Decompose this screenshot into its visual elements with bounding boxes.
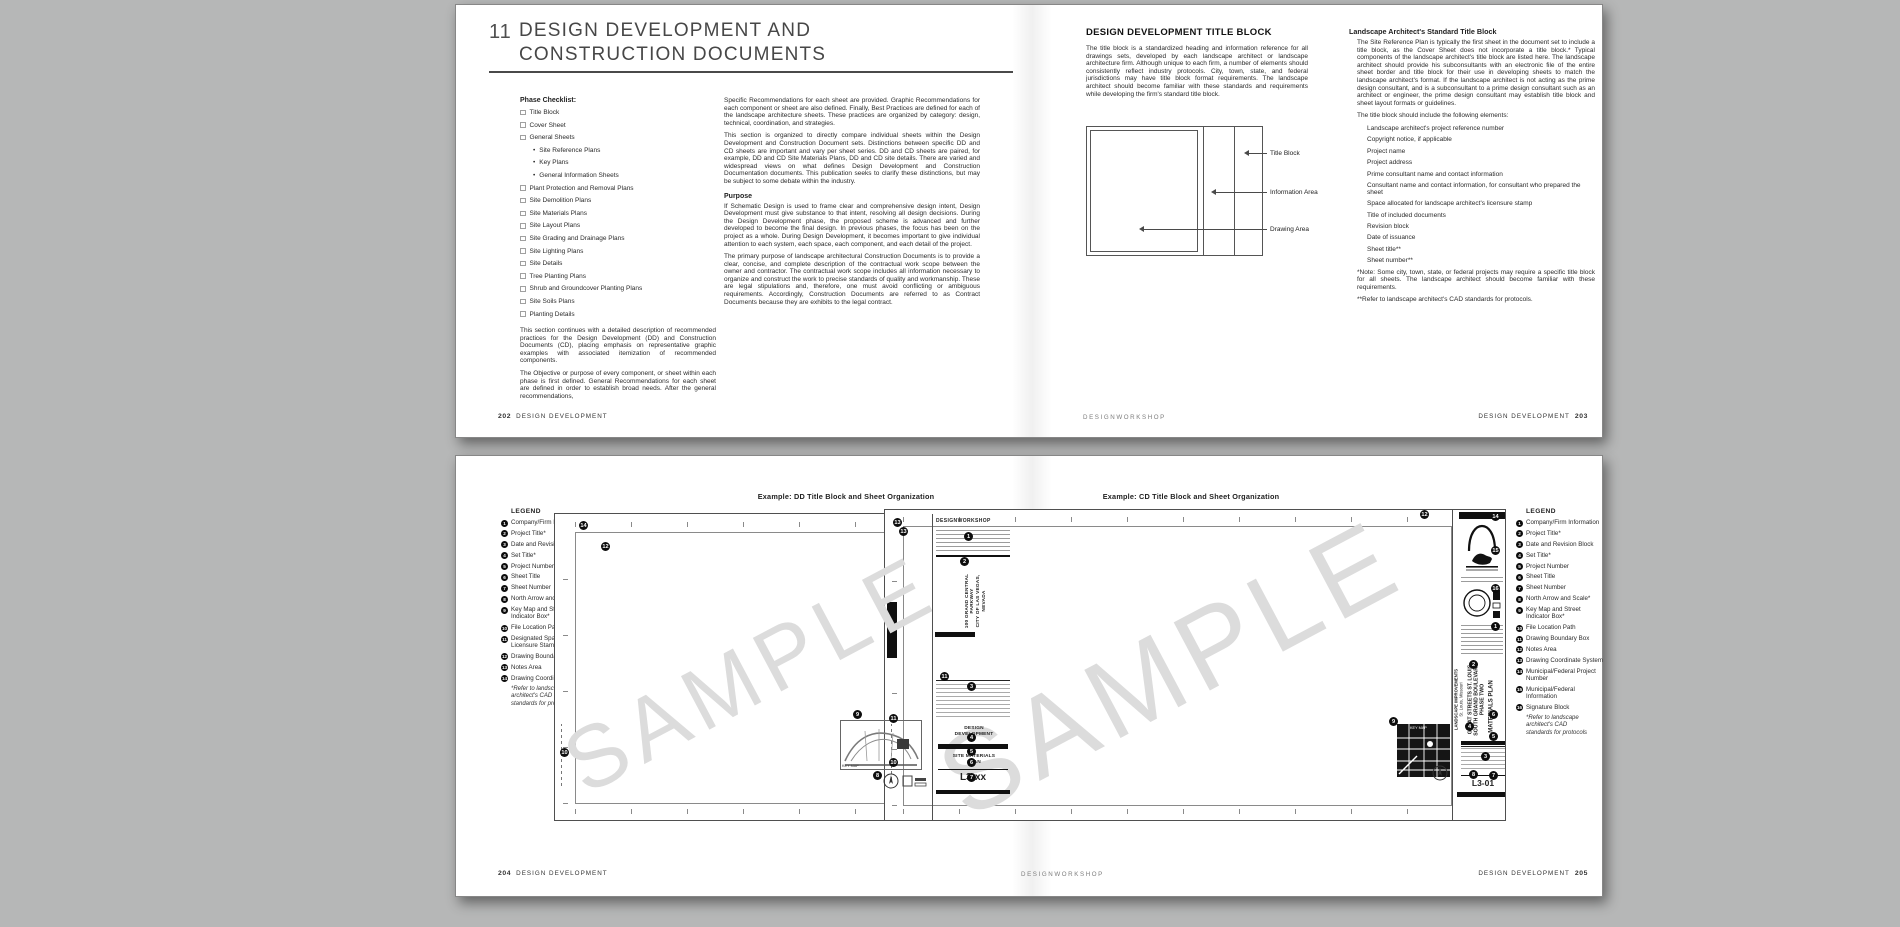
footnote: *Note: Some city, town, state, or federa…	[1349, 269, 1595, 292]
title-block-element: Consultant name and contact information,…	[1349, 182, 1595, 196]
checklist-item-label: Cover Sheet	[530, 122, 566, 129]
legend-number-badge: 3	[1516, 541, 1523, 548]
checklist-item-label: Plant Protection and Removal Plans	[530, 185, 634, 192]
chapter-title-line2: CONSTRUCTION DOCUMENTS	[519, 43, 826, 67]
legend-item: 15Municipal/Federal Information	[1516, 686, 1604, 701]
phase-checklist: Title BlockCover SheetGeneral Sheets•Sit…	[520, 109, 710, 323]
title-line3: PHASE TWO	[1479, 684, 1485, 715]
callout-11: 11	[889, 714, 898, 723]
callout-1: 1	[1491, 622, 1500, 631]
callout-8: 8	[1469, 770, 1478, 779]
page-203-footer: DESIGN DEVELOPMENT203	[1473, 413, 1588, 420]
footnote: **Refer to landscape architect's CAD sta…	[1349, 296, 1595, 304]
title-block-element: Landscape architect's project reference …	[1349, 125, 1595, 132]
phase-checklist-heading: Phase Checklist:	[520, 97, 576, 104]
checklist-item: Site Grading and Drainage Plans	[520, 235, 710, 242]
checklist-item: Tree Planting Plans	[520, 273, 710, 280]
checklist-item-label: General Sheets	[530, 134, 575, 141]
legend-number-badge: 5	[501, 563, 508, 570]
legend-number-badge: 14	[1516, 668, 1523, 675]
callout-2: 2	[1469, 660, 1478, 669]
callout-1: 1	[964, 532, 973, 541]
strip-bottom-bar	[936, 790, 1010, 794]
legend-item: 10File Location Path	[1516, 624, 1604, 632]
title-block-arrow-line	[1249, 153, 1267, 154]
strip-bottom-bar	[1457, 792, 1505, 797]
checklist-item-label: Shrub and Groundcover Planting Plans	[530, 285, 643, 292]
title-block-element: Prime consultant name and contact inform…	[1349, 171, 1595, 178]
page-205-footer: DESIGN DEVELOPMENT205	[1473, 870, 1588, 877]
legend-number-badge: 16	[1516, 704, 1523, 711]
checklist-item-label: Site Reference Plans	[539, 147, 600, 154]
legend-item-label: Project Title*	[511, 530, 546, 538]
drawing-area-box	[1090, 130, 1198, 252]
legend-number-badge: 6	[501, 574, 508, 581]
page-202-footer: 202DESIGN DEVELOPMENT	[498, 413, 613, 420]
logo-caption-text	[1461, 574, 1503, 582]
key-map-label: KEY MAP	[1410, 726, 1427, 730]
page-number: 205	[1575, 870, 1588, 877]
callout-13: 13	[893, 518, 902, 527]
paragraph: This section continues with a detailed d…	[520, 327, 716, 365]
legend-item-label: Date and Revision Block	[1526, 541, 1593, 549]
checklist-item: Site Soils Plans	[520, 298, 710, 305]
page202-col1: This section continues with a detailed d…	[520, 327, 716, 405]
callout-8: 8	[873, 771, 882, 780]
title-block-element: Revision block	[1349, 223, 1595, 230]
footer-section-label: DESIGN DEVELOPMENT	[1478, 870, 1569, 877]
legend-number-badge: 7	[501, 585, 508, 592]
paragraph: The Site Reference Plan is typically the…	[1349, 39, 1595, 107]
legend-item: 6Sheet Title	[1516, 573, 1604, 581]
legend-number-badge: 10	[1516, 625, 1523, 632]
legend-item-label: Drawing Boundary Box	[1526, 635, 1589, 643]
checkbox-icon	[520, 286, 526, 292]
callout-6: 6	[967, 758, 976, 767]
legend-item: 9Key Map and Street Indicator Box*	[1516, 606, 1604, 621]
drawing-area-arrow-line	[1144, 229, 1267, 230]
callout-12: 12	[1420, 510, 1429, 519]
legend-number-badge: 6	[1516, 574, 1523, 581]
checklist-item: Plant Protection and Removal Plans	[520, 185, 710, 192]
standard-title-block-heading: Landscape Architect's Standard Title Blo…	[1349, 27, 1595, 36]
key-map-label: KEY MAP	[842, 764, 859, 768]
legend-number-badge: 11	[1516, 636, 1523, 643]
legend-number-badge: 1	[501, 520, 508, 527]
checklist-item: Site Materials Plans	[520, 210, 710, 217]
firm-info-text	[936, 527, 1010, 551]
checklist-item: •Site Reference Plans	[520, 147, 710, 154]
callout-7: 7	[1489, 771, 1498, 780]
chapter-title-line1: DESIGN DEVELOPMENT AND	[519, 19, 826, 43]
checkbox-icon	[520, 185, 526, 191]
checklist-item: General Sheets	[520, 134, 710, 141]
footer-section-label: DESIGN DEVELOPMENT	[516, 870, 607, 877]
sheet-title: MATERIALS PLAN	[1488, 680, 1494, 733]
checklist-item-label: Site Lighting Plans	[530, 248, 584, 255]
title-block-divider	[1234, 126, 1235, 256]
legend-item-label: File Location Path	[1526, 624, 1576, 632]
legend-item-label: Notes Area	[1526, 646, 1557, 654]
chapter-number: 11	[489, 21, 512, 44]
legend-number-badge: 14	[501, 675, 508, 682]
checkbox-icon	[520, 248, 526, 254]
callout-12: 12	[601, 542, 610, 551]
callout-6: 6	[1489, 710, 1498, 719]
callout-3: 3	[1481, 752, 1490, 761]
dd-sheet-diagram: SAMPLE DESIGNWORKSHOP 100 GRAND CENTRAL …	[554, 513, 1013, 821]
publisher-brand-mark: DESIGNWORKSHOP	[1083, 414, 1166, 421]
legend-item-label: Sheet Title	[1526, 573, 1555, 581]
key-map-drawing	[841, 721, 921, 769]
sheet-number: L3-01	[1461, 775, 1505, 788]
book-viewer-background: 11 DESIGN DEVELOPMENT AND CONSTRUCTION D…	[0, 0, 1900, 927]
project-subtitle-vertical: LANDSCAPE IMPROVEMENTS St. Louis, Missou…	[1452, 658, 1465, 742]
checklist-item-label: Site Grading and Drainage Plans	[530, 235, 625, 242]
cd-legend: LEGEND 1Company/Firm Information2Project…	[1516, 508, 1604, 737]
strip-divider	[936, 555, 1010, 557]
callout-11: 11	[940, 672, 949, 681]
legend-item-label: Municipal/Federal Project Number	[1526, 668, 1604, 683]
spine-shadow	[1012, 5, 1052, 437]
project-title-line1: 100 GRAND CENTRAL PARKWAY	[965, 569, 976, 633]
page203-right-column: Landscape Architect's Standard Title Blo…	[1349, 27, 1595, 309]
legend-item: 3Date and Revision Block	[1516, 541, 1604, 549]
callout-10: 10	[560, 748, 569, 757]
north-arrow-icon	[1431, 764, 1449, 782]
title-block-element: Title of included documents	[1349, 212, 1595, 219]
legend-number-badge: 13	[501, 664, 508, 671]
information-area-arrow-line	[1216, 192, 1267, 193]
legend-item-label: Municipal/Federal Information	[1526, 686, 1604, 701]
checklist-item-label: Key Plans	[539, 159, 568, 166]
legend-number-badge: 9	[1516, 607, 1523, 614]
page203-intro: The title block is a standardized headin…	[1086, 45, 1308, 103]
legend-number-badge: 4	[1516, 552, 1523, 559]
checkbox-icon	[520, 211, 526, 217]
project-title-line2: CITY OF LAS VEGAS, NEVADA	[976, 569, 987, 633]
callout-14: 14	[1491, 512, 1500, 521]
legend-number-badge: 3	[501, 541, 508, 548]
drawing-area-label: Drawing Area	[1270, 226, 1309, 233]
callout-13: 13	[899, 527, 908, 536]
checkbox-icon	[520, 299, 526, 305]
legend-item-label: Set Title*	[511, 552, 536, 560]
legend-number-badge: 8	[1516, 596, 1523, 603]
paragraph: The Objective or purpose of every compon…	[520, 370, 716, 400]
legend-item-label: North Arrow and Scale*	[1526, 595, 1590, 603]
legend-number-badge: 2	[1516, 530, 1523, 537]
legend-item: 1Company/Firm Information	[1516, 519, 1604, 527]
legend-number-badge: 4	[501, 552, 508, 559]
checklist-item: Planting Details	[520, 311, 710, 318]
page-204-footer: 204DESIGN DEVELOPMENT	[498, 870, 613, 877]
callout-2: 2	[960, 557, 969, 566]
checklist-item: Title Block	[520, 109, 710, 116]
callout-15: 15	[1491, 546, 1500, 555]
footer-section-label: DESIGN DEVELOPMENT	[1478, 413, 1569, 420]
page-number: 203	[1575, 413, 1588, 420]
title-block-element: Sheet title**	[1349, 246, 1595, 253]
checkbox-icon	[520, 236, 526, 242]
legend-item-label: Company/Firm Information	[1526, 519, 1599, 527]
legend-item-label: Sheet Number	[1526, 584, 1566, 592]
checklist-item: •Key Plans	[520, 159, 710, 166]
legend-item: 2Project Title*	[1516, 530, 1604, 538]
title-block-element: Space allocated for landscape architect'…	[1349, 200, 1595, 207]
legend-footnote: *Refer to landscape architect's CAD stan…	[1526, 715, 1588, 737]
callout-9: 9	[1389, 717, 1398, 726]
legend-item-label: Signature Block	[1526, 704, 1569, 712]
checkbox-icon	[520, 135, 526, 141]
north-arrow-and-scale-icon	[882, 772, 928, 790]
legend-number-badge: 13	[1516, 657, 1523, 664]
callout-4: 4	[1465, 722, 1474, 731]
information-area-label: Information Area	[1270, 189, 1318, 196]
cd-example-title: Example: CD Title Block and Sheet Organi…	[961, 492, 1421, 501]
legend-number-badge: 1	[1516, 520, 1523, 527]
page-number: 204	[498, 870, 511, 877]
page-number: 202	[498, 413, 511, 420]
footer-section-label: DESIGN DEVELOPMENT	[516, 413, 607, 420]
checklist-item: Site Layout Plans	[520, 222, 710, 229]
dd-title-block-heading: DESIGN DEVELOPMENT TITLE BLOCK	[1086, 27, 1272, 38]
callout-4: 4	[967, 733, 976, 742]
checklist-item-label: Site Demolition Plans	[530, 197, 592, 204]
checklist-item: Site Demolition Plans	[520, 197, 710, 204]
checklist-item: Site Lighting Plans	[520, 248, 710, 255]
checklist-item-label: Tree Planting Plans	[530, 273, 587, 280]
checkbox-icon	[520, 110, 526, 116]
callout-9: 9	[853, 710, 862, 719]
paragraph: If Schematic Design is used to frame cle…	[724, 203, 980, 249]
legend-item-label: Drawing Coordinate System	[1526, 657, 1603, 665]
legend-number-badge: 12	[1516, 646, 1523, 653]
checklist-item: •General Information Sheets	[520, 172, 710, 179]
checklist-item-label: Title Block	[530, 109, 560, 116]
purpose-heading: Purpose	[724, 193, 980, 200]
paragraph: Specific Recommendations for each sheet …	[724, 97, 980, 127]
legend-item: 5Project Number	[1516, 563, 1604, 571]
bottom-page-spread: Example: DD Title Block and Sheet Organi…	[455, 455, 1603, 897]
bullet-marker: •	[533, 160, 535, 165]
paragraph: The title block is a standardized headin…	[1086, 45, 1308, 98]
coordinate-ticks-top	[575, 522, 932, 527]
title-block-elements-list: Landscape architect's project reference …	[1349, 125, 1595, 264]
legend-number-badge: 12	[501, 653, 508, 660]
checklist-item: Cover Sheet	[520, 122, 710, 129]
legend-item: 14Municipal/Federal Project Number	[1516, 668, 1604, 683]
callout-5: 5	[1489, 732, 1498, 741]
legend-number-badge: 2	[501, 530, 508, 537]
project-number-bar	[1461, 741, 1505, 745]
legend-heading: LEGEND	[1526, 508, 1604, 515]
checkbox-icon	[520, 311, 526, 317]
legend-items: 1Company/Firm Information2Project Title*…	[1516, 519, 1604, 711]
legend-item-label: Set Title*	[1526, 552, 1551, 560]
checkbox-icon	[520, 223, 526, 229]
legend-item: 12Notes Area	[1516, 646, 1604, 654]
legend-item-label: Project Number	[511, 563, 554, 571]
callout-5: 5	[967, 747, 976, 756]
checklist-item-label: Site Soils Plans	[530, 298, 575, 305]
legend-item-label: Notes Area	[511, 664, 542, 672]
legend-number-badge: 7	[1516, 585, 1523, 592]
checkbox-icon	[520, 198, 526, 204]
callout-16: 16	[1491, 584, 1500, 593]
checklist-item-label: Site Materials Plans	[530, 210, 587, 217]
callout-10: 10	[889, 758, 898, 767]
legend-number-badge: 10	[501, 625, 508, 632]
checkbox-icon	[520, 122, 526, 128]
title-block-diagram: Title Block Information Area Drawing Are…	[1086, 126, 1326, 258]
callout-7: 7	[967, 773, 976, 782]
legend-number-badge: 15	[1516, 686, 1523, 693]
publisher-brand-mark: DESIGNWORKSHOP	[1021, 871, 1104, 878]
top-page-spread: 11 DESIGN DEVELOPMENT AND CONSTRUCTION D…	[455, 4, 1603, 438]
legend-item: 4Set Title*	[1516, 552, 1604, 560]
checkbox-icon	[520, 261, 526, 267]
legend-item: 7Sheet Number	[1516, 584, 1604, 592]
callout-14: 14	[579, 521, 588, 530]
subtitle-line2: St. Louis, Missouri	[1458, 682, 1463, 716]
chapter-title: DESIGN DEVELOPMENT AND CONSTRUCTION DOCU…	[519, 19, 826, 67]
legend-number-badge: 5	[1516, 563, 1523, 570]
title-block-element: Project name	[1349, 148, 1595, 155]
title-block-label: Title Block	[1270, 150, 1300, 157]
coordinate-ticks-bottom	[575, 809, 932, 814]
project-title-vertical: 100 GRAND CENTRAL PARKWAY CITY OF LAS VE…	[965, 569, 987, 633]
legend-item-label: Project Title*	[1526, 530, 1561, 538]
legend-item-label: Project Number	[1526, 563, 1569, 571]
legend-number-badge: 9	[501, 607, 508, 614]
bullet-marker: •	[533, 173, 535, 178]
checklist-item: Site Details	[520, 260, 710, 267]
checklist-item-label: Planting Details	[530, 311, 575, 318]
elements-lead: The title block should include the follo…	[1349, 112, 1595, 120]
title-block-element: Copyright notice, if applicable	[1349, 136, 1595, 143]
legend-number-badge: 8	[501, 596, 508, 603]
paragraph: This section is organized to directly co…	[724, 132, 980, 185]
legend-item: 13Drawing Coordinate System	[1516, 657, 1604, 665]
bullet-marker: •	[533, 148, 535, 153]
legend-item-label: Sheet Number	[511, 584, 551, 592]
checklist-item-label: Site Layout Plans	[530, 222, 581, 229]
information-area-divider	[1203, 126, 1204, 256]
legend-item-label: Key Map and Street Indicator Box*	[1526, 606, 1604, 621]
checklist-item-label: General Information Sheets	[539, 172, 619, 179]
checklist-item: Shrub and Groundcover Planting Plans	[520, 285, 710, 292]
firm-logo: DESIGNWORKSHOP	[936, 518, 991, 524]
checkbox-icon	[520, 273, 526, 279]
title-block-element: Project address	[1349, 159, 1595, 166]
title-rule	[489, 71, 1013, 73]
title-block-element: Sheet number**	[1349, 257, 1595, 264]
title-block-element: Date of issuance	[1349, 234, 1595, 241]
checklist-item-label: Site Details	[530, 260, 563, 267]
page202-col2: Specific Recommendations for each sheet …	[724, 97, 980, 311]
legend-item: 16Signature Block	[1516, 704, 1604, 712]
legend-item: 11Drawing Boundary Box	[1516, 635, 1604, 643]
callout-3: 3	[967, 682, 976, 691]
key-map-box: KEY MAP	[840, 720, 922, 770]
legend-item: 8North Arrow and Scale*	[1516, 595, 1604, 603]
paragraph: The primary purpose of landscape archite…	[724, 253, 980, 306]
legend-item-label: Sheet Title	[511, 573, 540, 581]
legend-number-badge: 11	[501, 636, 508, 643]
